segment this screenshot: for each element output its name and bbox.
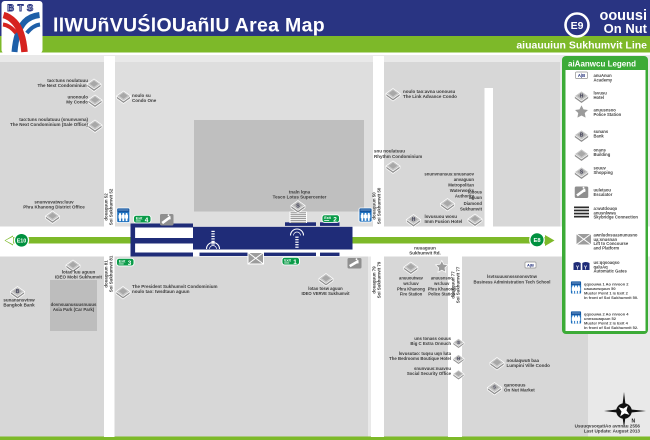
svg-text:Exit: Exit (284, 259, 291, 263)
svg-text:Soi Sukhumvit 77: Soi Sukhumvit 77 (455, 266, 460, 303)
svg-text:B: B (580, 132, 584, 138)
svg-text:aiuauuiun Sukhumvit Line: aiuauuiun Sukhumvit Line (516, 40, 647, 52)
svg-text:On Nut Market: On Nut Market (504, 388, 535, 393)
svg-text:Diamond: Diamond (464, 201, 483, 206)
svg-text:Soi Sukhumvit 50: Soi Sukhumvit 50 (376, 187, 381, 224)
svg-text:Tesco Lotus Supercenter: Tesco Lotus Supercenter (273, 195, 327, 200)
svg-text:snu noulatuuu: snu noulatuuu (374, 149, 405, 154)
svg-text:Soi Sukhumvit 81: Soi Sukhumvit 81 (108, 255, 113, 292)
svg-text:H: H (412, 217, 416, 223)
svg-text:H: H (580, 93, 584, 99)
svg-text:Asia Park (Car Park): Asia Park (Car Park) (53, 307, 95, 312)
svg-text:Big C Extra Onnuch: Big C Extra Onnuch (410, 341, 451, 346)
svg-text:Phra Khanong District Office: Phra Khanong District Office (23, 205, 85, 210)
svg-text:Soi Sukhumvit 79: Soi Sukhumvit 79 (376, 261, 381, 298)
svg-text:lsvtsuuusnsssnonsvtnw: lsvtsuuusnsssnonsvtnw (487, 274, 538, 279)
svg-text:Rhythm Condominium: Rhythm Condominium (374, 154, 422, 159)
svg-text:llWUñVUŚlOUañIU Area Map: llWUñVUŚlOUañIU Area Map (53, 13, 325, 37)
svg-text:anvaguun: anvaguun (454, 177, 475, 182)
svg-text:E9: E9 (571, 20, 584, 32)
svg-text:A|B: A|B (578, 73, 585, 78)
svg-text:Soi Sukhumvit 52: Soi Sukhumvit 52 (108, 188, 113, 225)
svg-text:1: 1 (293, 259, 297, 266)
svg-text:anuuoutwav: anuuoutwav (399, 276, 424, 281)
svg-text:Fire Station: Fire Station (400, 292, 423, 297)
svg-text:aiAanwcu Legend: aiAanwcu Legend (568, 60, 636, 69)
svg-text:Police Station: Police Station (428, 292, 456, 297)
svg-text:E8: E8 (533, 238, 541, 244)
svg-text:luuous: luuous (468, 190, 483, 195)
svg-text:Bank: Bank (594, 133, 605, 138)
svg-text:E10: E10 (17, 238, 27, 244)
svg-text:BTS: BTS (7, 3, 37, 14)
svg-text:H: H (457, 356, 460, 361)
svg-text:The Next Condominium: The Next Condominium (38, 83, 89, 88)
svg-text:Bangkok Bank: Bangkok Bank (3, 303, 35, 308)
svg-text:S: S (296, 204, 300, 210)
svg-text:and Platform: and Platform (594, 245, 620, 250)
svg-text:The Next Condominium (Sale Off: The Next Condominium (Sale Office) (10, 122, 89, 127)
svg-text:Condo One: Condo One (132, 98, 157, 103)
svg-text:Shopping: Shopping (594, 170, 614, 175)
svg-text:In front of Soi Sukhumvit 52.: In front of Soi Sukhumvit 52. (584, 325, 638, 330)
svg-text:noulo tao: twsdtaun aguun: noulo tao: twsdtaun aguun (132, 289, 190, 294)
svg-text:The Bedrooms Boutique Hotel: The Bedrooms Boutique Hotel (389, 356, 451, 361)
svg-text:A|B: A|B (527, 263, 534, 268)
svg-text:Police Station: Police Station (594, 112, 622, 117)
svg-text:Escalator: Escalator (594, 192, 613, 197)
svg-text:aguun: aguun (469, 195, 482, 200)
svg-text:Last Update: August 2013: Last Update: August 2013 (584, 429, 641, 434)
svg-text:Automatic Gates: Automatic Gates (594, 269, 628, 274)
svg-text:IDEO Mobi Sukhumvit: IDEO Mobi Sukhumvit (55, 275, 103, 280)
svg-text:Phra Khanong: Phra Khanong (428, 286, 456, 291)
svg-text:Hotel: Hotel (594, 95, 604, 100)
svg-text:Exit: Exit (136, 217, 143, 221)
svg-text:Lumpini Ville Condo: Lumpini Ville Condo (507, 363, 551, 368)
svg-text:Imm Fusion Hotel: Imm Fusion Hotel (425, 219, 463, 224)
svg-text:Sukhumvit Rd.: Sukhumvit Rd. (409, 250, 441, 255)
svg-text:In front of Soi Sukhumvit 50.: In front of Soi Sukhumvit 50. (584, 295, 638, 300)
svg-text:Exit: Exit (324, 216, 331, 220)
svg-text:4: 4 (145, 217, 149, 224)
svg-text:Academy: Academy (594, 77, 613, 82)
svg-text:IDEO VERVE Sukhumvit: IDEO VERVE Sukhumvit (301, 291, 350, 296)
svg-text:My Condo: My Condo (66, 100, 88, 105)
svg-text:Exit: Exit (119, 260, 126, 264)
svg-text:On Nut: On Nut (604, 21, 648, 36)
svg-text:snunvnunsus:unusnaov: snunvnunsus:unusnaov (424, 172, 474, 177)
svg-text:Social Security Office: Social Security Office (407, 371, 452, 376)
svg-text:2: 2 (333, 216, 337, 223)
svg-text:B: B (16, 289, 20, 295)
svg-text:S: S (457, 340, 460, 345)
svg-text:ws:luuv: ws:luuv (402, 281, 419, 286)
svg-text:Skybridge Connection: Skybridge Connection (594, 215, 639, 220)
svg-text:The Link Advance Condo: The Link Advance Condo (403, 94, 457, 99)
svg-text:Business Administration Tech S: Business Administration Tech School (474, 280, 551, 285)
svg-text:Metropolitan: Metropolitan (448, 183, 474, 188)
svg-text:S: S (493, 385, 496, 390)
svg-text:Phra Khanong: Phra Khanong (397, 286, 425, 291)
svg-text:Sukhumvit: Sukhumvit (460, 207, 483, 212)
svg-text:anuusnsoo: anuusnsoo (431, 276, 453, 281)
svg-text:Building: Building (594, 152, 611, 157)
svg-text:3: 3 (128, 260, 132, 267)
svg-text:ws:luuv: ws:luuv (433, 281, 450, 286)
